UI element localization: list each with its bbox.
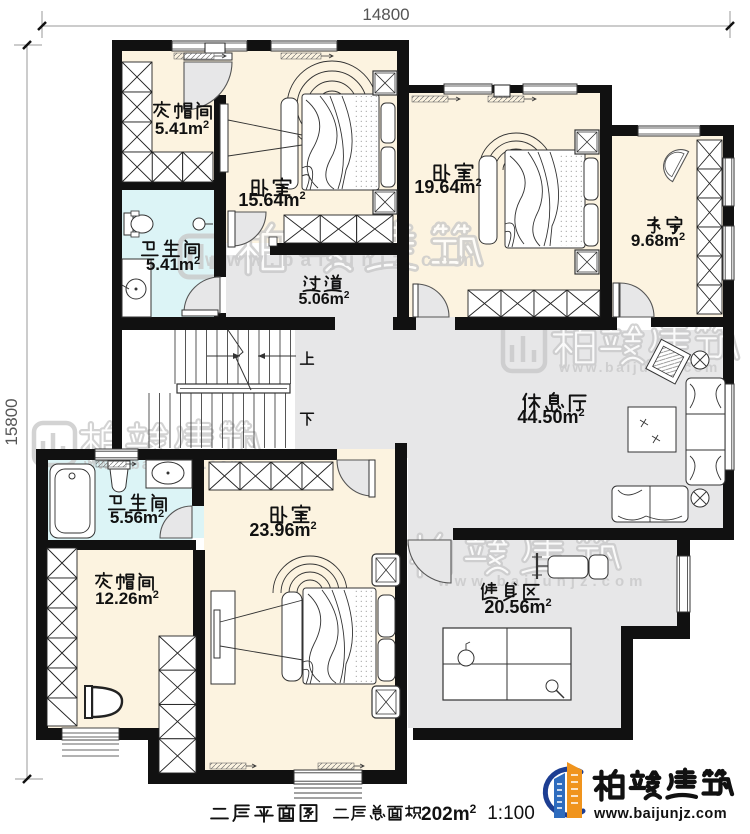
svg-text:19.64m2: 19.64m2 [414,177,481,197]
svg-text:14800: 14800 [362,5,409,24]
svg-text:www.baijunjz.com: www.baijunjz.com [593,806,727,822]
svg-text:15.64m2: 15.64m2 [238,190,305,210]
svg-text:12.26m2: 12.26m2 [95,589,159,608]
svg-text:5.41m2: 5.41m2 [155,119,209,138]
svg-text:202m2: 202m2 [421,802,477,825]
svg-text:9.68m2: 9.68m2 [631,231,685,250]
svg-text:5.06m2: 5.06m2 [299,290,350,308]
svg-text:20.56m2: 20.56m2 [484,597,551,617]
svg-text:44.50m2: 44.50m2 [517,407,584,427]
svg-text:www.baijunjz.com: www.baijunjz.com [437,573,647,590]
svg-text:5.41m2: 5.41m2 [146,255,200,274]
svg-text:23.96m2: 23.96m2 [249,520,316,540]
svg-text:5.56m2: 5.56m2 [110,508,164,527]
svg-text:15800: 15800 [2,398,21,445]
svg-text:1:100: 1:100 [487,803,535,824]
